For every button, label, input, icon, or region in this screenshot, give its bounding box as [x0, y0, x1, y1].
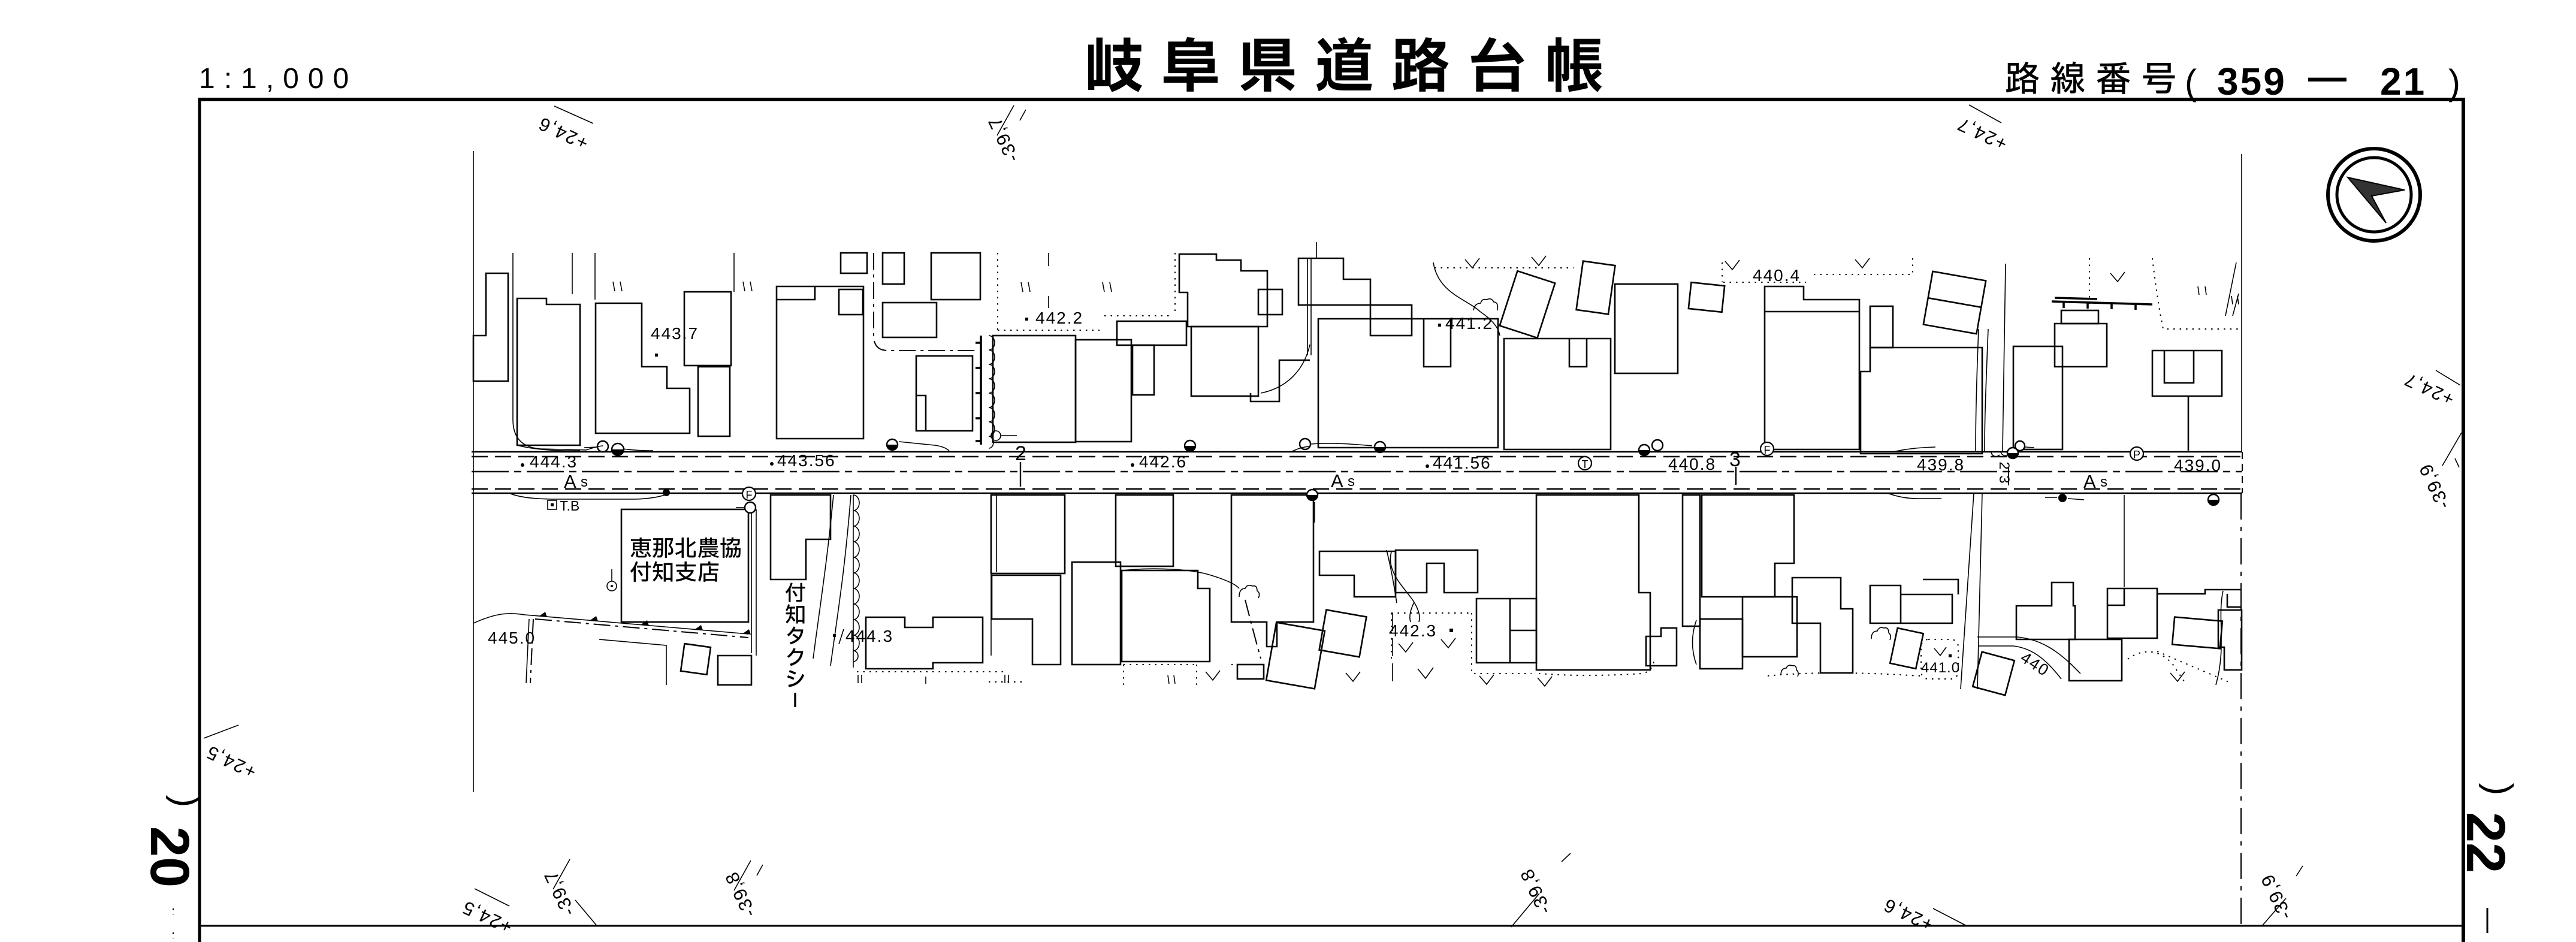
svg-text:21: 21 [2380, 60, 2426, 103]
svg-text:): ) [165, 795, 207, 808]
svg-text:440.8: 440.8 [1668, 455, 1716, 473]
svg-text:A: A [1331, 470, 1343, 491]
svg-text:): ) [2478, 783, 2520, 796]
svg-text:20: 20 [139, 826, 200, 887]
svg-text:441.56: 441.56 [1433, 454, 1491, 472]
svg-text:359: 359 [2217, 60, 2287, 103]
svg-text:s: s [2100, 474, 2107, 490]
svg-text:443.56: 443.56 [777, 451, 836, 470]
svg-text:444.3: 444.3 [845, 627, 893, 645]
svg-text:A: A [2083, 471, 2096, 492]
svg-text:2: 2 [1015, 442, 1026, 465]
svg-text:440.4: 440.4 [1753, 266, 1801, 285]
svg-text:441.0: 441.0 [1921, 660, 1960, 676]
svg-text:441.2: 441.2 [1445, 314, 1493, 333]
svg-text:445.0: 445.0 [488, 629, 536, 647]
svg-text:22: 22 [2455, 812, 2516, 873]
svg-text:T: T [1582, 458, 1589, 470]
svg-text:442.2: 442.2 [1035, 309, 1083, 327]
svg-text:(: ( [2185, 62, 2197, 102]
svg-text:439.8: 439.8 [1917, 455, 1965, 474]
svg-text:442.3: 442.3 [1389, 621, 1437, 640]
svg-text:s: s [1348, 473, 1355, 490]
svg-text:1:1,000: 1:1,000 [199, 63, 358, 95]
svg-text:443.7: 443.7 [651, 324, 699, 343]
svg-text:2: 2 [1996, 461, 2012, 469]
svg-text:3: 3 [1729, 448, 1741, 471]
svg-text:442.6: 442.6 [1139, 452, 1187, 471]
svg-text:3: 3 [1996, 475, 2012, 483]
svg-text:F: F [1764, 444, 1771, 456]
svg-text:): ) [2448, 62, 2460, 102]
svg-text:439.0: 439.0 [2174, 456, 2222, 475]
svg-text:—: — [2308, 55, 2347, 98]
svg-text:A: A [564, 471, 576, 492]
svg-text:444.3: 444.3 [530, 452, 578, 471]
svg-text:P: P [2133, 449, 2140, 461]
svg-text:s: s [581, 474, 588, 490]
svg-text:T.B: T.B [560, 498, 579, 514]
svg-text:F: F [746, 489, 753, 501]
